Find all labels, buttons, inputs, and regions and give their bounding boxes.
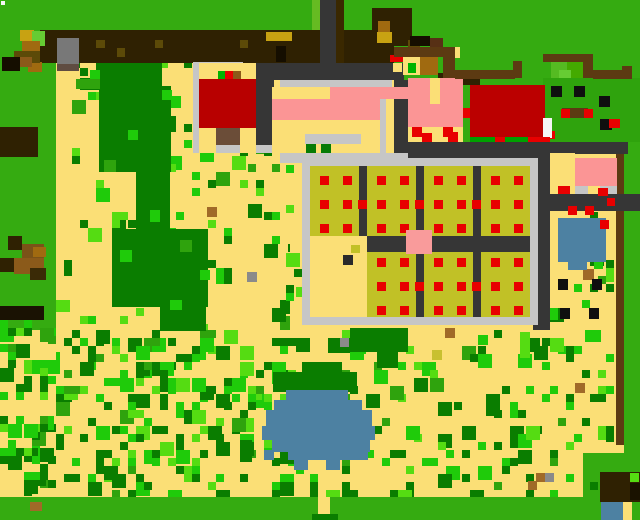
pond-large[interactable]	[262, 390, 376, 470]
hedge-bush[interactable]	[543, 54, 593, 78]
farmhouse[interactable]	[272, 80, 424, 163]
coop-building[interactable]	[193, 62, 279, 153]
north-road[interactable]	[320, 0, 344, 63]
yard-cabin[interactable]	[408, 55, 463, 142]
farm-map	[0, 0, 640, 520]
pond-small[interactable]	[558, 218, 606, 270]
barn-building[interactable]	[470, 85, 550, 143]
fruit-trees[interactable]	[543, 78, 640, 142]
shipping-bin[interactable]	[57, 38, 79, 71]
greenhouse-small[interactable]	[550, 153, 617, 194]
east-road[interactable]	[540, 194, 640, 211]
south-path-gap[interactable]	[318, 497, 330, 520]
field-center-marker[interactable]	[406, 230, 432, 254]
corner-hut[interactable]	[600, 472, 640, 520]
